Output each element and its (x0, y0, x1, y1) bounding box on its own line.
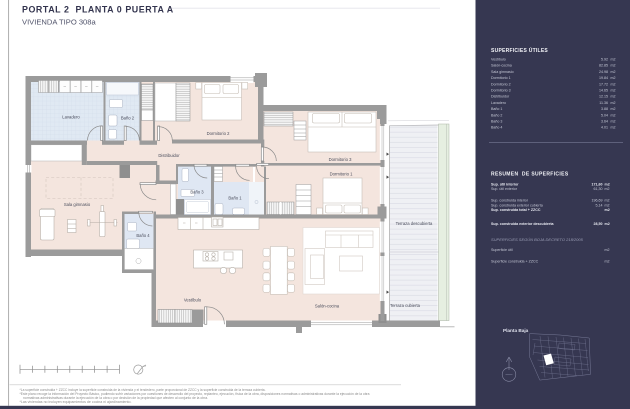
svg-text:Salón-cocina: Salón-cocina (315, 304, 340, 309)
svg-text:196,69: 196,69 (592, 199, 603, 203)
svg-text:3.88: 3.88 (601, 107, 608, 111)
svg-text:12.15: 12.15 (599, 95, 608, 99)
svg-text:Baño 1: Baño 1 (491, 107, 502, 111)
svg-text:m2: m2 (605, 183, 610, 187)
svg-text:Baño 4: Baño 4 (136, 233, 150, 238)
svg-text:82.85: 82.85 (599, 64, 608, 68)
svg-text:m2: m2 (605, 248, 610, 252)
svg-text:m2: m2 (611, 113, 616, 117)
svg-text:SUPERFICIES SEGÚN BOJA DECRETO: SUPERFICIES SEGÚN BOJA DECRETO 218/2005 (491, 237, 584, 242)
svg-text:m2: m2 (611, 120, 616, 124)
svg-text:24.98: 24.98 (599, 70, 608, 74)
svg-text:Sala gimnasio: Sala gimnasio (64, 202, 91, 207)
svg-text:Baño 2: Baño 2 (121, 116, 135, 121)
svg-text:PORTAL 2 PLANTA 0 PUERTA A: PORTAL 2 PLANTA 0 PUERTA A (22, 5, 174, 15)
svg-text:3.64: 3.64 (601, 120, 608, 124)
svg-text:m2: m2 (611, 101, 616, 105)
svg-text:VIVIENDA TIPO 308a: VIVIENDA TIPO 308a (22, 18, 97, 27)
svg-text:11.36: 11.36 (599, 101, 608, 105)
svg-text:Sup. construida total + ZZCC: Sup. construida total + ZZCC (491, 208, 541, 212)
svg-text:Planta Baja: Planta Baja (503, 328, 529, 333)
svg-text:m2: m2 (605, 199, 610, 203)
svg-text:Vestíbulo: Vestíbulo (491, 58, 506, 62)
svg-text:Dormitorio 2: Dormitorio 2 (207, 131, 230, 136)
svg-text:RESUMEN DE SUPERFICIES: RESUMEN DE SUPERFICIES (491, 172, 569, 178)
svg-text:Baño 3: Baño 3 (190, 190, 204, 195)
svg-text:Distribuidor: Distribuidor (491, 95, 510, 99)
svg-text:Sala gimnasio: Sala gimnasio (491, 70, 514, 74)
svg-text:Baño 2: Baño 2 (491, 113, 502, 117)
svg-text:Distribuidor: Distribuidor (158, 153, 180, 158)
svg-text:Terraza descubierta: Terraza descubierta (396, 221, 433, 226)
svg-text:Terraza cubierta: Terraza cubierta (390, 303, 421, 308)
svg-text:Dormitorio 3: Dormitorio 3 (329, 157, 352, 162)
svg-text:m2: m2 (605, 187, 610, 191)
svg-text:m2: m2 (605, 208, 610, 212)
svg-text:m2: m2 (605, 222, 610, 226)
svg-text:Baño 4: Baño 4 (491, 126, 502, 130)
svg-text:m2: m2 (611, 126, 616, 130)
svg-text:Lavadero: Lavadero (491, 101, 506, 105)
svg-text:171,60: 171,60 (592, 183, 603, 187)
svg-text:Dormitorio 1: Dormitorio 1 (491, 76, 511, 80)
svg-text:m2: m2 (611, 89, 616, 93)
svg-text:Dormitorio 2: Dormitorio 2 (491, 82, 511, 86)
svg-text:19.84: 19.84 (599, 76, 608, 80)
svg-text:m2: m2 (611, 64, 616, 68)
svg-text:m2: m2 (611, 58, 616, 62)
svg-text:Superficie útil: Superficie útil (491, 248, 513, 252)
svg-text:Baño 1: Baño 1 (228, 196, 242, 201)
svg-text:m2: m2 (611, 70, 616, 74)
svg-text:Dormitorio 3: Dormitorio 3 (491, 89, 511, 93)
svg-text:61,30: 61,30 (594, 187, 603, 191)
svg-text:Sup. útil interior: Sup. útil interior (491, 183, 519, 187)
svg-text:Dormitorio 1: Dormitorio 1 (330, 172, 353, 177)
svg-text:Sup. construida exterior descu: Sup. construida exterior descubierta (491, 222, 555, 226)
svg-text:4.01: 4.01 (601, 126, 608, 130)
svg-text:Salón-cocina: Salón-cocina (491, 64, 512, 68)
svg-text:Sup. construida interior: Sup. construida interior (491, 199, 529, 203)
svg-text:*Las viviendas no incluyen equ: *Las viviendas no incluyen equipamientos… (20, 400, 132, 404)
svg-text:m2: m2 (611, 82, 616, 86)
svg-text:28,50: 28,50 (594, 222, 603, 226)
svg-text:Sup. útil exterior: Sup. útil exterior (491, 187, 518, 191)
svg-text:m2: m2 (611, 76, 616, 80)
svg-text:5.04: 5.04 (601, 113, 608, 117)
svg-text:m2: m2 (611, 95, 616, 99)
svg-text:m2: m2 (605, 260, 610, 264)
svg-text:Sup. construida exterior cubie: Sup. construida exterior cubierta (491, 203, 543, 207)
svg-text:17.72: 17.72 (599, 82, 608, 86)
svg-text:5.92: 5.92 (601, 58, 608, 62)
svg-text:Superficie construida + ZZCC: Superficie construida + ZZCC (491, 260, 539, 264)
svg-text:m2: m2 (605, 203, 610, 207)
svg-text:Vestíbulo: Vestíbulo (184, 298, 202, 303)
svg-text:Baño 3: Baño 3 (491, 120, 502, 124)
svg-text:SUPERFICIES ÚTILES: SUPERFICIES ÚTILES (491, 47, 548, 54)
svg-text:5,14: 5,14 (596, 203, 603, 207)
svg-text:Lavadero: Lavadero (62, 115, 80, 120)
svg-text:m2: m2 (611, 107, 616, 111)
svg-text:14.65: 14.65 (599, 89, 608, 93)
